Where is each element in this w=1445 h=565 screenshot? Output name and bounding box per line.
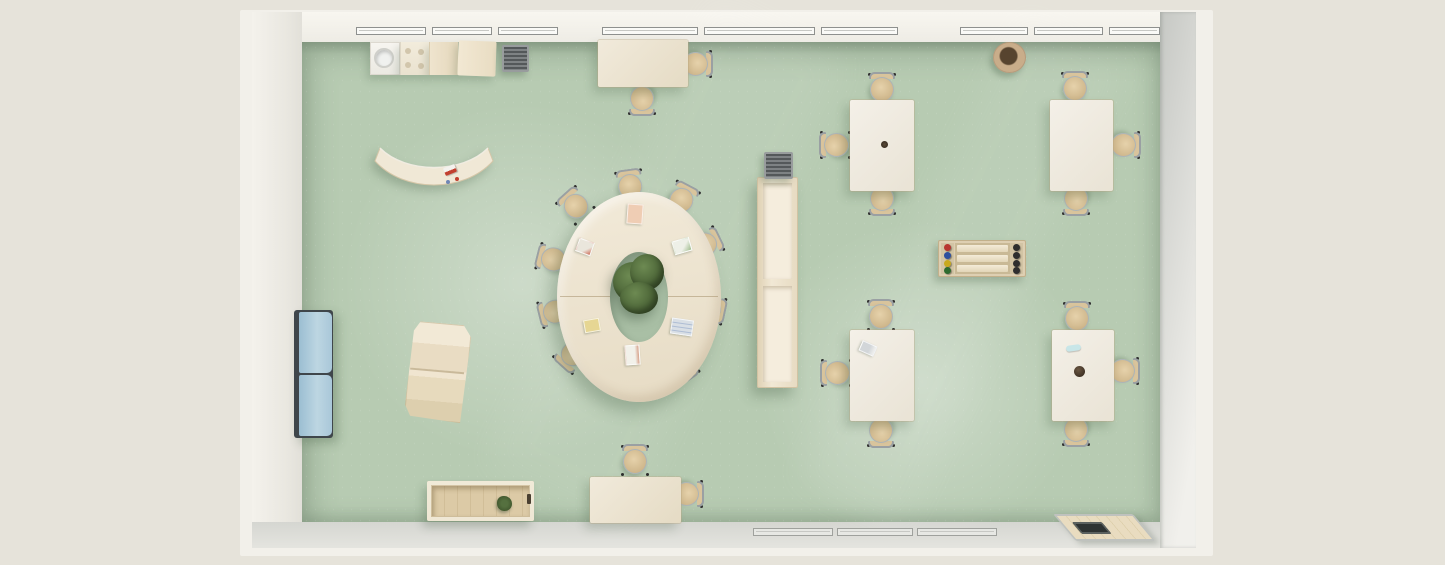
chair xyxy=(1060,71,1090,103)
rect-table-bottom-wall xyxy=(590,477,681,523)
window-segment xyxy=(1034,27,1103,35)
chair xyxy=(1109,130,1141,160)
chair xyxy=(627,84,657,116)
bench-planks xyxy=(432,486,529,516)
knob-column-right xyxy=(1010,243,1023,274)
storage-bench xyxy=(427,481,534,521)
knob-green xyxy=(944,267,951,274)
chair xyxy=(620,444,650,476)
window-segment xyxy=(1109,27,1160,35)
paper-card xyxy=(626,203,643,224)
chair xyxy=(866,299,896,331)
potted-plant xyxy=(610,254,666,316)
window-segment xyxy=(704,27,815,35)
window-segment xyxy=(960,27,1028,35)
foosball-lanes xyxy=(955,243,1010,274)
wall-right xyxy=(1160,12,1196,548)
small-plant xyxy=(497,496,512,511)
wall-left xyxy=(252,12,302,548)
knob-blue xyxy=(944,252,951,259)
window-segment xyxy=(498,27,558,35)
wall-bottom xyxy=(252,522,1196,548)
window-segment xyxy=(837,528,913,536)
shelf-panel xyxy=(763,183,792,279)
blue-cabinet xyxy=(294,310,333,438)
rect-table-top-wall xyxy=(598,40,688,87)
window-segment xyxy=(753,528,833,536)
window-segment xyxy=(432,27,492,35)
cabinet-door xyxy=(299,375,332,436)
rect-table-se-left xyxy=(850,330,914,421)
knob-red xyxy=(944,244,951,251)
drying-rack xyxy=(502,45,529,72)
kitchen-cabinet xyxy=(457,40,496,76)
chair xyxy=(1062,301,1092,333)
window-segment xyxy=(602,27,698,35)
chair xyxy=(820,358,852,388)
floor xyxy=(302,42,1160,522)
mat-slot xyxy=(1072,522,1112,534)
chair xyxy=(819,130,851,160)
table-item xyxy=(881,141,888,148)
window-segment xyxy=(356,27,426,35)
stove-burners xyxy=(405,48,411,54)
paper-card xyxy=(583,318,601,334)
red-item xyxy=(455,177,459,181)
knob-dark xyxy=(1013,252,1020,259)
window-segment xyxy=(917,528,997,536)
tall-shelf xyxy=(757,177,798,388)
paper-card xyxy=(624,345,640,366)
round-stool xyxy=(993,42,1026,73)
knob-yellow xyxy=(944,260,951,267)
knob-dark xyxy=(1013,244,1020,251)
cabinet-door xyxy=(299,312,332,373)
bench-handle xyxy=(527,494,531,504)
step-shelf xyxy=(404,321,472,424)
foosball-table xyxy=(938,240,1026,277)
paper-card xyxy=(670,318,694,337)
shelf-panel xyxy=(763,286,792,382)
curved-table xyxy=(374,144,494,198)
knob-dark xyxy=(1013,267,1020,274)
window-segment xyxy=(821,27,898,35)
rect-table-ne-right xyxy=(1050,100,1113,191)
sink-basin xyxy=(374,48,394,68)
classroom-top-view xyxy=(0,0,1445,565)
blue-item xyxy=(446,180,450,184)
knob-column-left xyxy=(941,243,954,274)
gray-basket xyxy=(764,152,793,179)
plant-pot xyxy=(1074,366,1085,377)
stove-top xyxy=(400,42,429,75)
kitchen-cabinet xyxy=(429,42,458,75)
knob-dark xyxy=(1013,260,1020,267)
